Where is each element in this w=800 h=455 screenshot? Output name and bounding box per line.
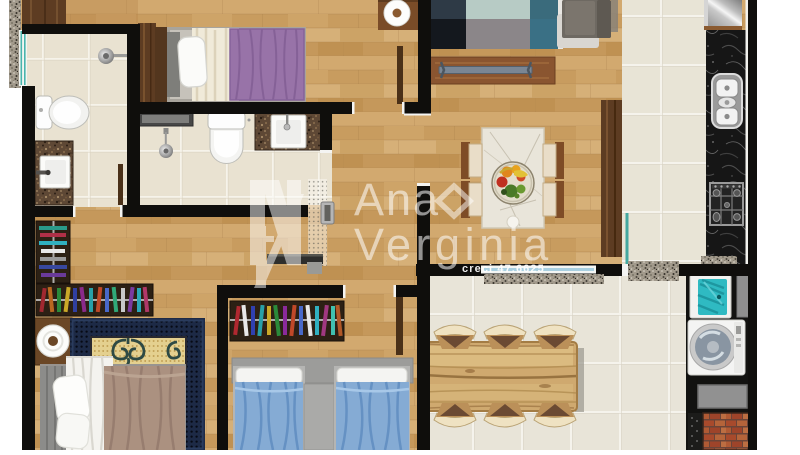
svg-text:creci 47.6625: creci 47.6625 — [462, 263, 545, 275]
svg-text:Ana: Ana — [354, 174, 440, 225]
